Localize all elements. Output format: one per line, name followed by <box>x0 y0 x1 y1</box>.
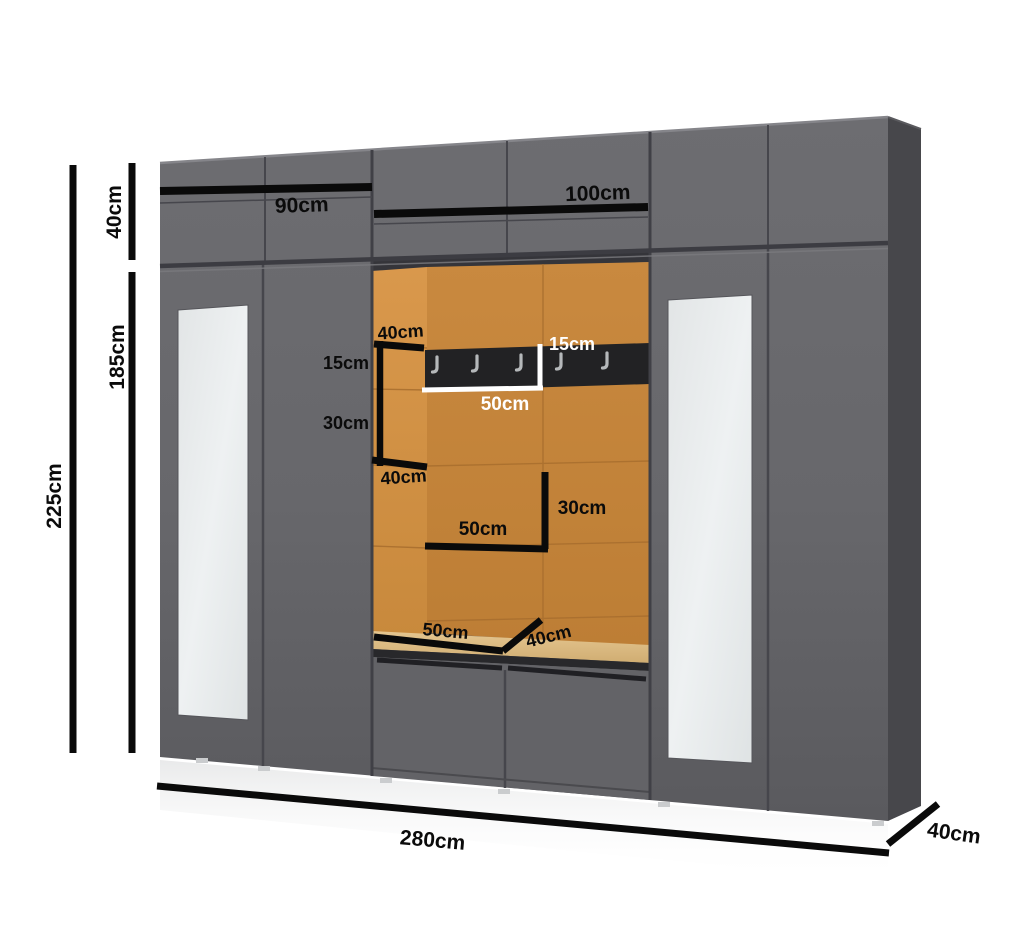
dim-compartment-width-label: 50cm <box>459 519 508 540</box>
dim-height-upper-label: 40cm <box>103 185 126 239</box>
dim-depth-total-label: 40cm <box>926 818 982 848</box>
wardrobe <box>160 117 921 826</box>
dim-width-total-label: 280cm <box>399 826 466 855</box>
dim-lower-shelf-depth-label: 40cm <box>380 465 427 488</box>
dim-rail-width-line <box>422 388 543 390</box>
dim-bench-width-label: 50cm <box>422 619 470 643</box>
dim-height-total-label: 225cm <box>43 463 66 528</box>
dim-upper-shelf-depth-label: 40cm <box>377 320 424 343</box>
dim-compartment-height-label: 30cm <box>558 498 607 519</box>
wardrobe-diagram-canvas: 40cm 185cm 225cm 90cm 100cm 40cm 15cm 30… <box>0 0 1024 941</box>
dim-rail-height-right-label: 15cm <box>549 334 595 354</box>
mirror-left <box>178 305 248 720</box>
open-niche <box>372 250 650 671</box>
dim-width-center-label: 100cm <box>565 181 631 206</box>
furniture-dimension-diagram: 40cm 185cm 225cm 90cm 100cm 40cm 15cm 30… <box>0 0 1024 941</box>
dim-width-left-label: 90cm <box>275 193 329 218</box>
dim-height-main-label: 185cm <box>106 324 129 389</box>
dim-rail-width-label: 50cm <box>481 394 530 415</box>
bench-drawers <box>372 657 650 800</box>
niche-back-wall <box>427 262 650 647</box>
dim-width-left-line <box>160 187 372 191</box>
dim-rail-height-left-label: 15cm <box>323 353 369 373</box>
dim-compartment-width-line <box>425 546 548 549</box>
side-panel <box>888 117 921 821</box>
dim-shelf-gap-label: 30cm <box>323 413 369 433</box>
mirror-right <box>668 295 752 763</box>
